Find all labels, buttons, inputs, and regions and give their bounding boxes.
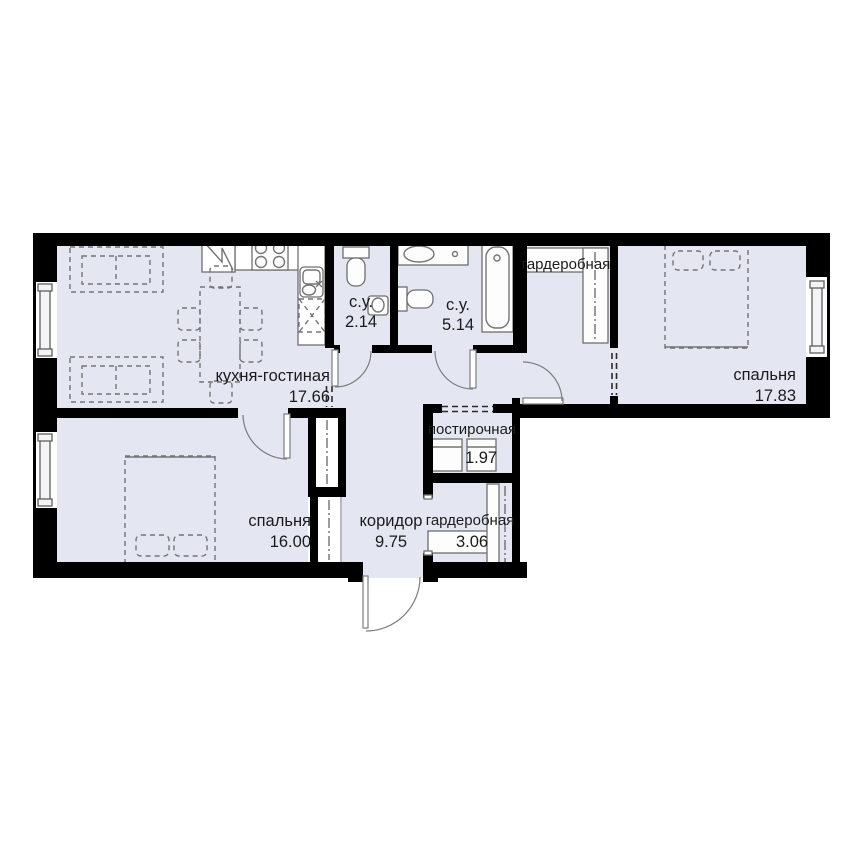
bedroom-entry-zone: [520, 348, 618, 404]
washing-machine-icon: [429, 439, 462, 471]
doorway-entrance: [363, 562, 423, 578]
floorplan-page: кухня-гостиная 17.66 с.у. 2.14 с.у. 5.14…: [0, 0, 864, 864]
toilet-icon: [396, 287, 433, 311]
doorway-bathroom-large: [432, 345, 473, 353]
label-wardrobe-bottom: гардеробная: [426, 512, 515, 529]
label-bathroom-small: с.у.: [349, 293, 373, 311]
opening-jamb: [424, 551, 432, 555]
kitchen-sink-icon: [300, 267, 323, 297]
area-kitchen-living: 17.66: [289, 388, 330, 406]
floorplan-drawing: кухня-гостиная 17.66 с.у. 2.14 с.у. 5.14…: [0, 0, 864, 864]
area-wardrobe-bottom: 3.06: [456, 533, 488, 551]
hallway-zone: [325, 348, 520, 408]
opening-jamb: [424, 495, 432, 499]
area-corridor: 9.75: [375, 533, 407, 551]
area-bedroom-left: 16.00: [270, 533, 311, 551]
label-kitchen-living: кухня-гостиная: [215, 367, 330, 385]
area-bathroom-small: 2.14: [345, 313, 377, 331]
area-bathroom-large: 5.14: [442, 316, 474, 334]
label-bedroom-left: спальня: [248, 512, 311, 530]
label-bedroom-right: спальня: [733, 366, 796, 384]
bathtub-icon: [482, 243, 513, 332]
label-wardrobe-top: гардеробная: [522, 256, 611, 273]
window-icon: [810, 281, 824, 353]
label-bathroom-large: с.у.: [446, 296, 470, 314]
doorway-bathroom-small: [340, 345, 372, 353]
toilet-icon: [343, 247, 369, 286]
label-laundry: постирочная: [428, 421, 516, 438]
window-icon: [38, 434, 52, 506]
door-entrance: [363, 576, 420, 631]
window-icon: [38, 284, 52, 356]
area-laundry: 1.97: [465, 449, 497, 467]
label-corridor: коридор: [360, 512, 423, 530]
area-bedroom-right: 17.83: [755, 387, 796, 405]
doorway-bedroom-left: [238, 408, 288, 418]
vanity-sink-icon: [398, 244, 468, 265]
